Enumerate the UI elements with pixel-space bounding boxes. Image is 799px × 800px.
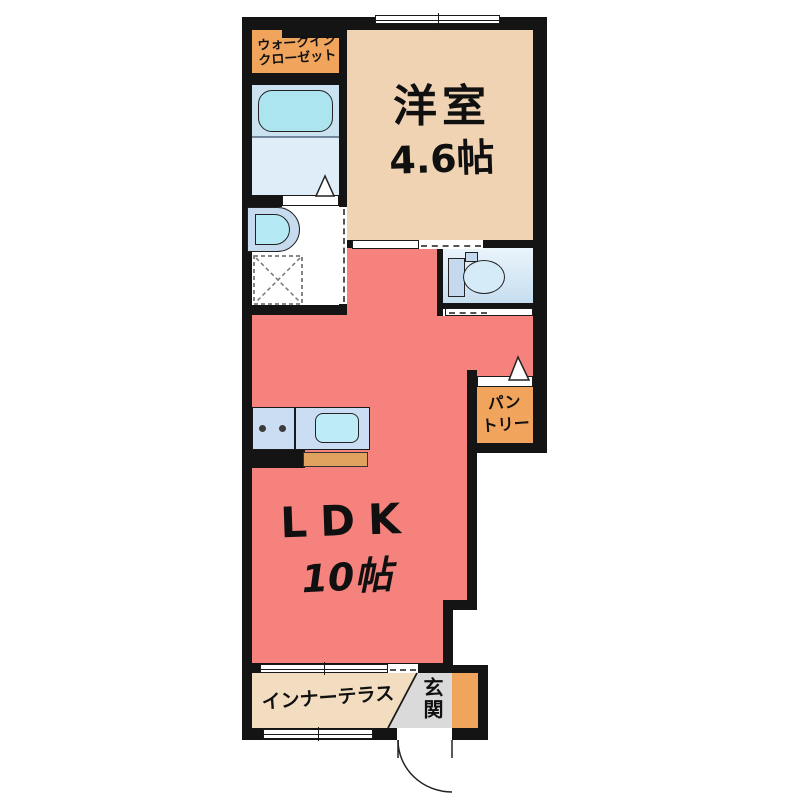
window-tick [318,727,319,741]
stove-burner-icon [279,425,286,432]
window-terrace-bottom-icon [263,729,373,739]
ldk-terrace-opening [388,664,418,673]
entrance-accent-strip [452,673,478,728]
window-top-icon [375,15,500,24]
western-room-door-bar [352,240,419,249]
entrance-door-arc-icon [398,740,452,792]
washbasin-bowl-icon [255,214,290,245]
kitchen-counter-divider [294,408,296,449]
window-tick [324,662,325,675]
wall-closet-bottom [242,73,347,85]
wall-right-mid [467,443,477,610]
dashed-opening-line [343,209,345,302]
walk-in-closet-label: ウォークイン クローゼット [250,34,344,70]
ldk-name: LDK [271,494,423,548]
bath-divider-line [252,136,340,138]
stove-burner-icon [259,425,266,432]
pantry-label: パン トリー [478,390,533,437]
bath-door-bar [282,195,339,206]
dashed-opening-line [421,245,481,247]
window-terrace-top-icon [260,664,388,673]
wall-bath-washroom [247,195,282,207]
window-tick [438,13,439,26]
toilet-bowl-icon [463,260,505,294]
dashed-opening-line [390,669,416,671]
washroom-door-opening [339,207,347,304]
western-room-name: 洋室 [352,82,532,133]
ldk-size: 10帖 [281,553,413,603]
dashed-opening-line [449,312,487,314]
bathtub-icon [258,90,333,132]
wall-pantry-left [467,370,477,453]
wall-left [242,17,252,740]
wall-kitchen-stub [252,450,305,468]
kitchen-cabinet-bar [303,452,368,467]
western-room-door-opening [419,240,483,249]
floor-plan: ウォークイン クローゼット 洋室 4.6帖 LDK 10帖 パン トリー インナ… [0,0,799,800]
toilet-door-opening [447,308,489,316]
pantry-label-line2: トリー [479,412,532,437]
western-room-size: 4.6帖 [351,135,532,185]
pantry-door-bar [477,376,533,387]
wall-right-upper [533,17,547,453]
entrance-door-gap [397,728,452,740]
kitchen-sink-icon [315,413,359,443]
room-bath-lower [250,137,340,195]
wall-pantry-bottom [467,443,547,453]
entrance-label: 玄関 [413,677,443,727]
wall-washroom-bottom [242,305,347,315]
